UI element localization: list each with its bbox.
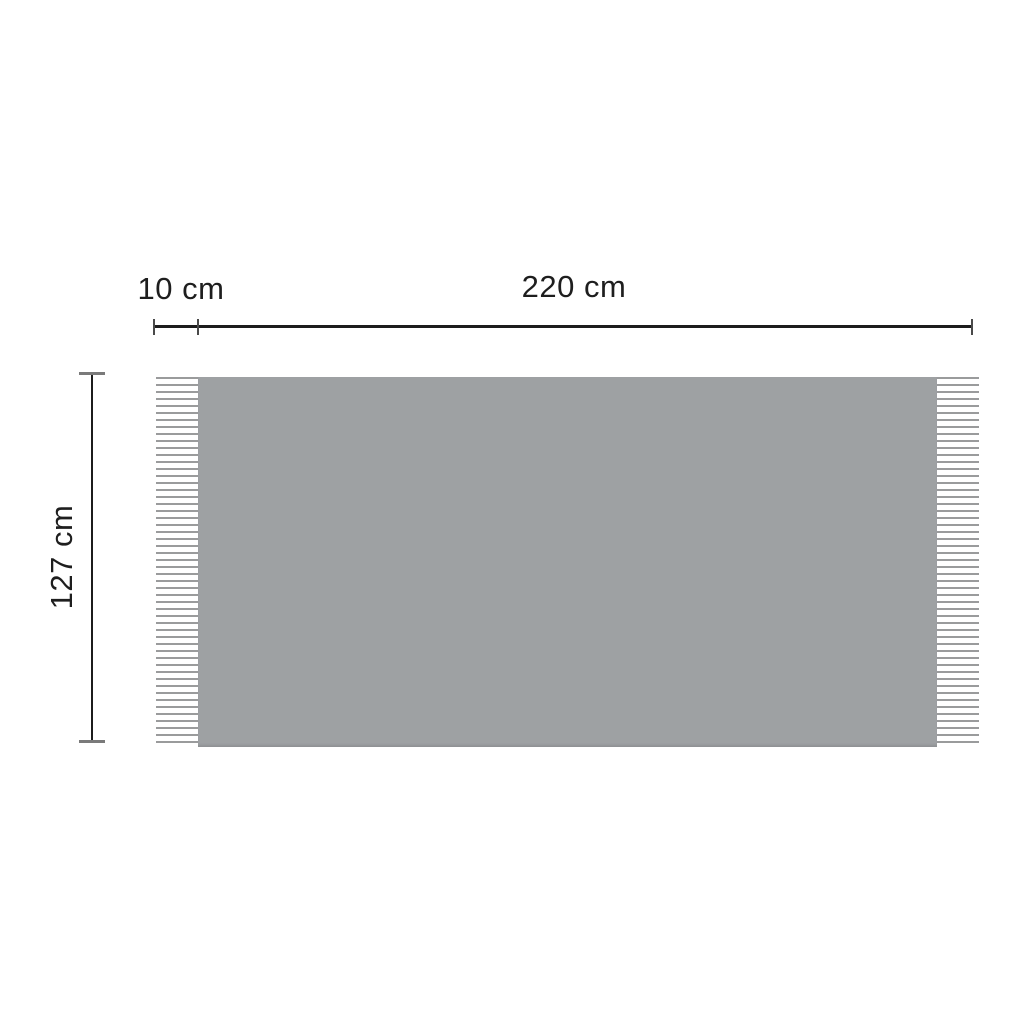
dimension-tick-right [971,319,973,335]
blanket-body [198,377,937,747]
fringe-width-label: 10 cm [121,271,241,307]
body-width-label: 220 cm [474,269,674,305]
product-dimension-diagram: 10 cm 220 cm 127 cm [0,0,1024,1024]
horizontal-dimension-line [154,325,973,328]
blanket-right-fringe [937,377,979,745]
dimension-tick-top [79,372,105,375]
height-label: 127 cm [44,457,80,657]
dimension-tick-bottom [79,740,105,743]
dimension-tick-fringe-boundary [197,319,199,335]
blanket-left-fringe [156,377,198,745]
dimension-tick-left [153,319,155,335]
vertical-dimension-line [91,374,93,742]
